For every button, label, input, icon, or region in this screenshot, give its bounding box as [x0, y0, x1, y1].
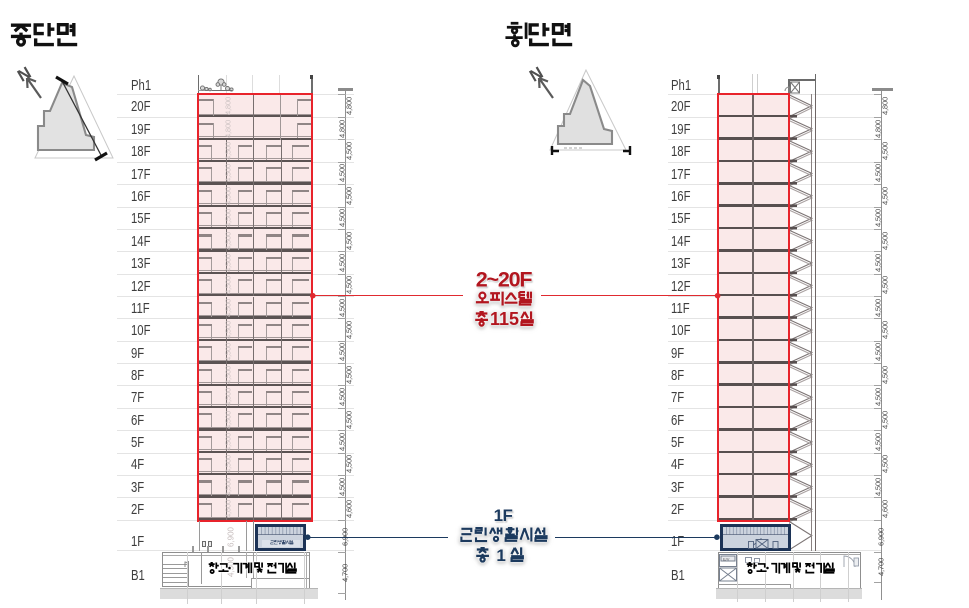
svg-text:1: 1 [497, 546, 506, 565]
svg-text:N: N [526, 63, 546, 86]
svg-text:115: 115 [490, 309, 519, 329]
svg-text:N: N [14, 63, 34, 86]
